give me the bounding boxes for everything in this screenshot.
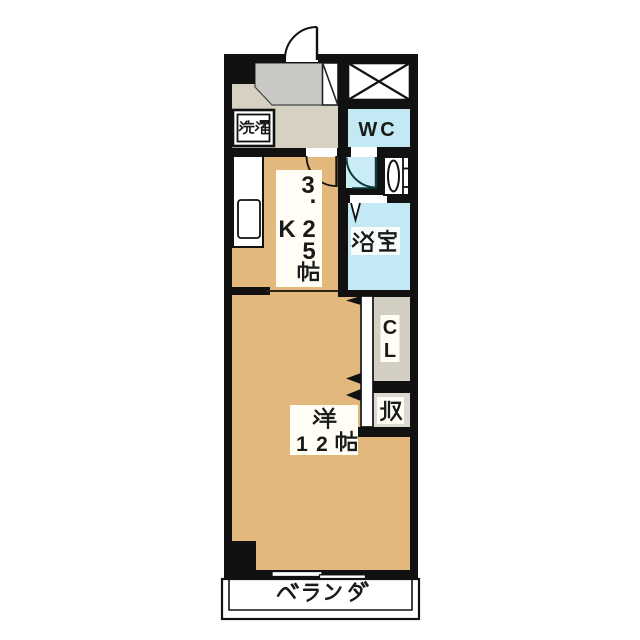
svg-text:.: . bbox=[310, 182, 317, 209]
svg-text:L: L bbox=[384, 340, 396, 362]
svg-text:1: 1 bbox=[296, 433, 308, 456]
svg-text:WC: WC bbox=[358, 119, 397, 141]
svg-text:2: 2 bbox=[316, 433, 328, 456]
svg-text:C: C bbox=[383, 317, 397, 339]
svg-text:K: K bbox=[278, 216, 296, 243]
